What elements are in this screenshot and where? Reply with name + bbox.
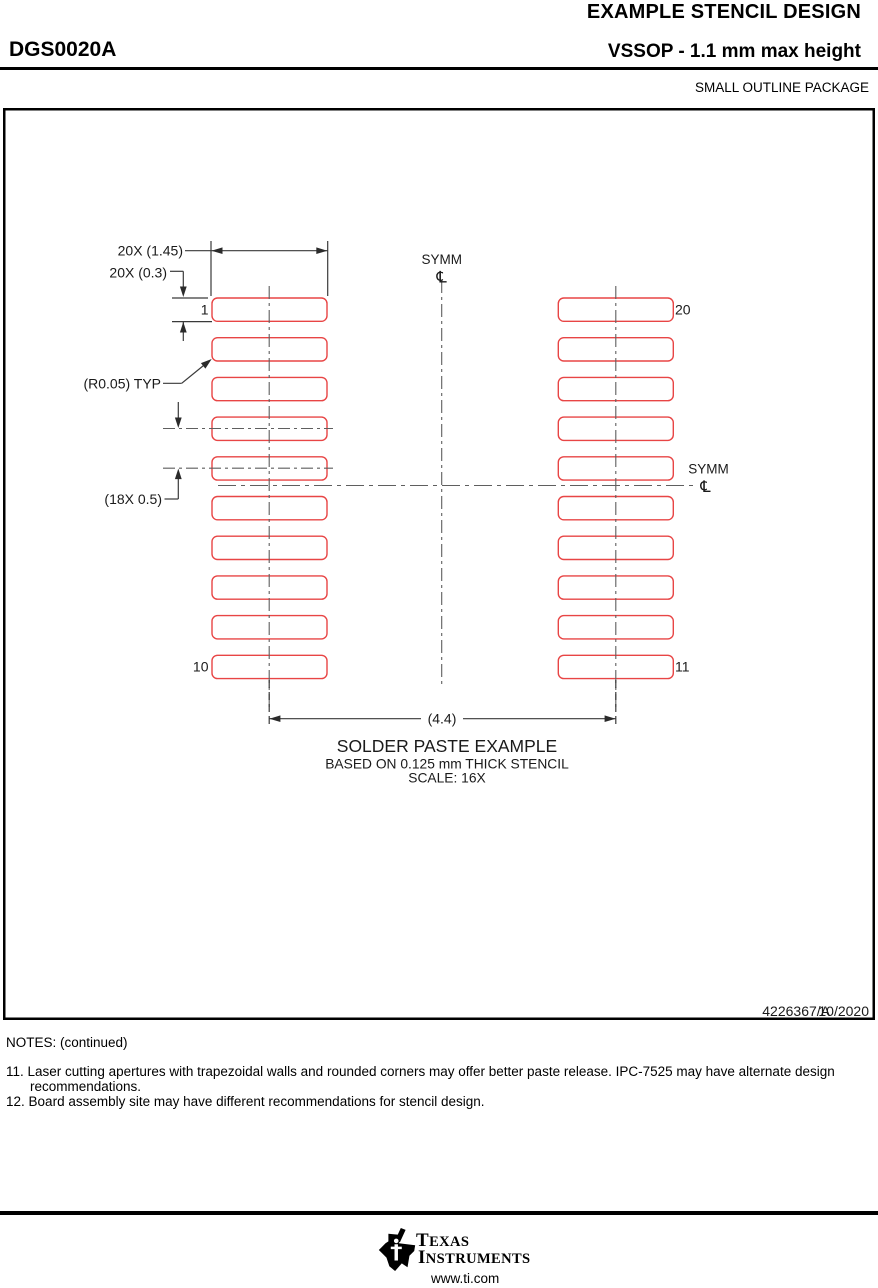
notes-section: NOTES: (continued) 11. Laser cutting ape… (6, 1035, 852, 1109)
note-item-12: 12. Board assembly site may have differe… (6, 1094, 852, 1109)
doc-date: 10/2020 (818, 1003, 869, 1019)
corner-radius-label: (R0.05) TYP (83, 376, 161, 392)
datasheet-page: { "header": { "title": "EXAMPLE STENCIL … (0, 0, 878, 1288)
aperture-height-label: 20X (0.3) (109, 265, 167, 281)
symm-top-label: SYMM (421, 252, 462, 267)
note-text: Board assembly site may have different r… (29, 1094, 485, 1109)
website-link[interactable]: www.ti.com (431, 1271, 499, 1286)
pitch-label: (18X 0.5) (104, 491, 162, 507)
symm-right-label: SYMM (688, 462, 729, 477)
page-title: EXAMPLE STENCIL DESIGN (587, 1, 861, 24)
brand-texas: TEXAS (416, 1233, 531, 1250)
note-item-11: 11. Laser cutting apertures with trapezo… (6, 1064, 852, 1094)
pin-10-label: 10 (193, 659, 209, 675)
package-subtitle: VSSOP - 1.1 mm max height (608, 41, 861, 63)
ti-brand-text: TEXAS INSTRUMENTS (416, 1233, 531, 1267)
pin-11-label: 11 (675, 659, 690, 675)
note-number: 11. (6, 1064, 24, 1079)
header-rule (0, 67, 878, 70)
span-label: (4.4) (428, 711, 457, 727)
caption-subtitle: BASED ON 0.125 mm THICK STENCIL (325, 757, 569, 772)
stencil-drawing: 20X (1.45) 20X (0.3) (R0.05) TYP (18X 0.… (3, 108, 875, 1020)
brand-instruments: INSTRUMENTS (418, 1250, 531, 1267)
ti-logo-icon (377, 1228, 417, 1272)
stencil-pads (212, 298, 673, 679)
pin-20-label: 20 (675, 302, 691, 318)
caption-title: SOLDER PASTE EXAMPLE (337, 736, 557, 756)
note-text: Laser cutting apertures with trapezoidal… (28, 1064, 835, 1094)
package-type: SMALL OUTLINE PACKAGE (695, 80, 869, 95)
caption-scale: SCALE: 16X (408, 771, 485, 786)
pin-1-label: 1 (201, 302, 209, 318)
aperture-width-label: 20X (1.45) (118, 243, 183, 259)
centerline-symbol-top-icon: ℄ (436, 268, 448, 287)
part-number: DGS0020A (9, 38, 116, 62)
centerline-symbol-right-icon: ℄ (699, 477, 711, 496)
note-number: 12. (6, 1094, 25, 1109)
notes-heading: NOTES: (continued) (6, 1035, 852, 1050)
footer-rule (0, 1211, 878, 1215)
